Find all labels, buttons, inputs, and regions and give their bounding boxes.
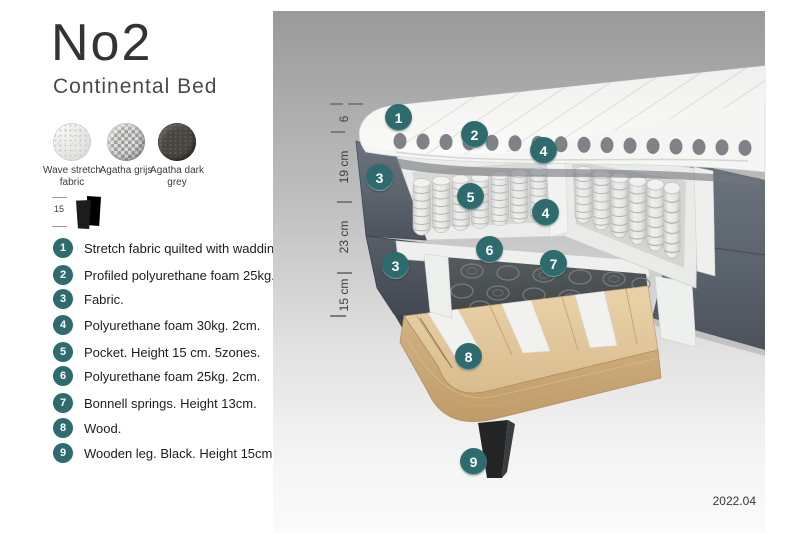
product-sheet: No2 Continental Bed Wave stretch fabric …	[0, 0, 800, 533]
callout-8-wood: 8	[455, 343, 482, 370]
callout-7-bonnell: 7	[540, 250, 567, 277]
callout-4-foam-top: 4	[530, 137, 557, 164]
callout-5-pocket-springs: 5	[457, 183, 484, 210]
version-date: 2022.04	[713, 494, 756, 508]
callout-3-fabric-lower: 3	[382, 252, 409, 279]
callout-9-leg: 9	[460, 448, 487, 475]
callout-1-topper: 1	[385, 104, 412, 131]
dim-label-leg: 15 cm	[337, 265, 351, 325]
callout-4-foam-bottom: 4	[532, 199, 559, 226]
dim-label-mattress: 19 cm	[337, 137, 351, 197]
dim-tick	[337, 201, 352, 203]
callout-2-profiled-foam: 2	[461, 121, 488, 148]
dim-label-box: 23 cm	[337, 207, 351, 267]
callout-6-box-foam: 6	[476, 236, 503, 263]
callout-3-fabric-upper: 3	[366, 164, 393, 191]
